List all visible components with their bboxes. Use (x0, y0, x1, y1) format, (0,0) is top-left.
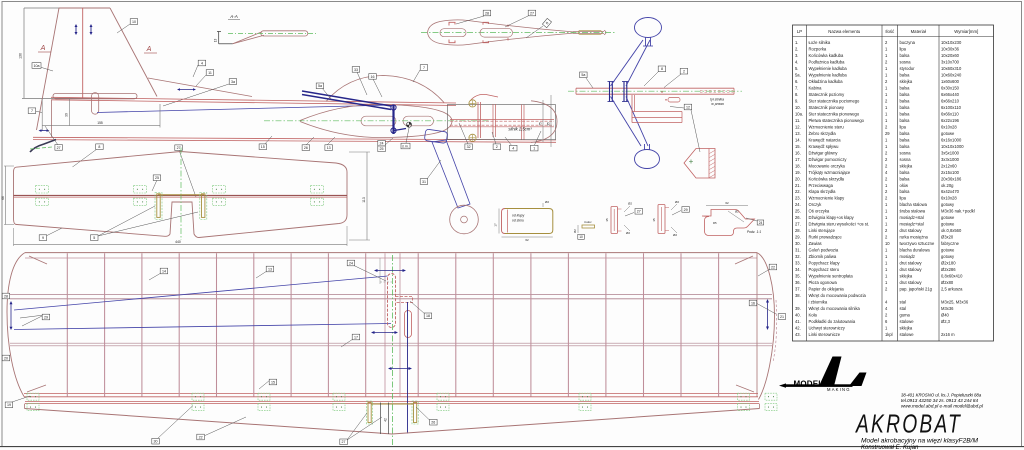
svg-text:5a: 5a (581, 73, 585, 77)
svg-text:20: 20 (4, 356, 8, 360)
svg-text:7.: 7. (795, 85, 798, 90)
svg-text:6x66x440: 6x66x440 (941, 92, 960, 97)
svg-text:Dźwignia steru wysokości +os s: Dźwignia steru wysokości +os st. (809, 222, 870, 227)
svg-text:Żebro skrzydła: Żebro skrzydła (809, 131, 837, 136)
svg-text:tel.0913 43250 34 zs. 0913 43: tel.0913 43250 34 zs. 0913 43 244 84 (901, 398, 979, 403)
svg-text:3.: 3. (795, 53, 798, 58)
svg-text:35.: 35. (795, 274, 801, 279)
svg-text:Ø2: Ø2 (545, 200, 549, 204)
svg-text:A-A: A-A (229, 14, 238, 19)
svg-text:13: 13 (268, 267, 272, 271)
svg-text:17: 17 (494, 223, 498, 227)
svg-text:Linki sterujące: Linki sterujące (809, 228, 836, 233)
svg-text:155: 155 (97, 121, 103, 125)
svg-text:7: 7 (31, 109, 33, 113)
svg-text:29: 29 (885, 131, 890, 136)
svg-text:Trójkąty wzmacniające: Trójkąty wzmacniające (809, 170, 851, 175)
svg-text:balsa: balsa (900, 189, 911, 194)
svg-text:10.: 10. (795, 105, 801, 110)
svg-text:27: 27 (530, 11, 534, 15)
svg-text:10x10x230: 10x10x230 (941, 40, 962, 45)
svg-text:rurka mosiężna: rurka mosiężna (900, 235, 929, 240)
svg-text:od steru: od steru (512, 219, 524, 223)
svg-text:31: 31 (422, 180, 426, 184)
svg-text:sklejka: sklejka (900, 274, 913, 279)
svg-text:37.: 37. (795, 287, 801, 292)
svg-text:bolec: bolec (584, 220, 592, 224)
svg-text:440: 440 (175, 240, 181, 244)
svg-text:blacha stalowa: blacha stalowa (900, 202, 928, 207)
svg-text:15.: 15. (795, 144, 801, 149)
svg-text:6x42x470: 6x42x470 (941, 189, 960, 194)
svg-text:Okładzina kadłuba: Okładzina kadłuba (809, 79, 844, 84)
svg-text:gotowe: gotowe (941, 131, 955, 136)
svg-text:tworzywo sztuczne: tworzywo sztuczne (900, 241, 935, 246)
svg-text:Wzmocnienie steru: Wzmocnienie steru (809, 124, 845, 129)
svg-text:balsa: balsa (900, 85, 911, 90)
svg-text:1kpl: 1kpl (885, 332, 893, 337)
svg-text:3a: 3a (231, 80, 235, 84)
svg-text:buczyna: buczyna (900, 40, 916, 45)
svg-text:AKROBAT: AKROBAT (855, 409, 962, 439)
svg-text:balsa: balsa (900, 53, 911, 58)
svg-text:2.: 2. (795, 46, 798, 51)
svg-text:4.: 4. (795, 59, 798, 64)
svg-text:Rurki prowadzące: Rurki prowadzące (809, 235, 843, 240)
svg-text:25: 25 (155, 176, 159, 180)
svg-text:Łoże silnika: Łoże silnika (809, 40, 831, 45)
svg-text:75: 75 (539, 122, 543, 126)
svg-text:1x60x600: 1x60x600 (941, 79, 960, 84)
svg-text:62: 62 (525, 238, 529, 242)
svg-text:10a.: 10a. (795, 111, 803, 116)
svg-text:drut stalowy: drut stalowy (900, 228, 923, 233)
svg-text:9.: 9. (795, 98, 798, 103)
svg-text:gotowy: gotowy (941, 202, 955, 207)
svg-text:18: 18 (426, 314, 430, 318)
svg-text:balsa: balsa (900, 72, 911, 77)
svg-text:Ø2: Ø2 (673, 233, 677, 237)
svg-text:8: 8 (661, 67, 663, 71)
svg-text:Ø3x20: Ø3x20 (941, 235, 954, 240)
svg-text:sklejka: sklejka (900, 326, 913, 331)
svg-text:29: 29 (44, 315, 48, 319)
svg-text:od klapy: od klapy (512, 214, 525, 218)
svg-text:tył silnika: tył silnika (710, 98, 724, 102)
svg-text:28: 28 (4, 294, 8, 298)
svg-text:Oś orczyka: Oś orczyka (809, 209, 830, 214)
svg-text:28.: 28. (795, 228, 801, 233)
svg-text:10x60x240: 10x60x240 (941, 72, 962, 77)
svg-text:śruba stalowa: śruba stalowa (900, 209, 926, 214)
svg-text:Klapa skrzydła: Klapa skrzydła (809, 189, 837, 194)
svg-text:30.: 30. (795, 241, 801, 246)
svg-text:Ø2x180: Ø2x180 (941, 261, 956, 266)
svg-text:6x10x28: 6x10x28 (941, 124, 957, 129)
svg-text:fabryczne: fabryczne (941, 241, 960, 246)
svg-text:Konstruował E. Kujan: Konstruował E. Kujan (861, 445, 919, 450)
svg-text:3x10x700: 3x10x700 (941, 59, 960, 64)
svg-text:balsa: balsa (900, 98, 911, 103)
svg-text:Model akrobacyjny na więzi kla: Model akrobacyjny na więzi klasyF2B/M (861, 438, 979, 445)
svg-text:i zbiornika: i zbiornika (809, 300, 828, 305)
svg-text:21.: 21. (795, 183, 801, 188)
svg-text:drut stalowy: drut stalowy (900, 280, 923, 285)
svg-text:13: 13 (327, 146, 331, 150)
svg-text:Podłużnica kadłuba: Podłużnica kadłuba (809, 59, 846, 64)
svg-text:27: 27 (637, 210, 641, 214)
svg-text:guma: guma (900, 313, 911, 318)
svg-text:Uchwyt sterowniczy: Uchwyt sterowniczy (809, 326, 846, 331)
svg-text:ok.0,8x560: ok.0,8x560 (941, 228, 962, 233)
svg-text:24.: 24. (795, 202, 801, 207)
svg-text:42.: 42. (795, 326, 801, 331)
svg-text:22.: 22. (795, 189, 801, 194)
svg-text:17.: 17. (795, 157, 801, 162)
svg-text:33.: 33. (795, 261, 801, 266)
svg-text:24: 24 (349, 261, 353, 265)
svg-text:ok.20g: ok.20g (941, 183, 954, 188)
svg-text:M3x36: M3x36 (941, 306, 954, 311)
svg-text:7: 7 (423, 66, 425, 70)
svg-text:Dźwignia klapy+os klapy: Dźwignia klapy+os klapy (809, 215, 855, 220)
svg-text:Koła: Koła (809, 313, 818, 318)
svg-text:sklejka: sklejka (900, 163, 913, 168)
svg-text:6x66x110: 6x66x110 (941, 111, 959, 116)
svg-text:5a.: 5a. (795, 72, 801, 77)
svg-text:4: 4 (201, 61, 203, 65)
svg-text:balsa: balsa (900, 170, 911, 175)
svg-text:29.: 29. (795, 235, 801, 240)
svg-text:34.: 34. (795, 267, 801, 272)
svg-text:Ø2: Ø2 (735, 210, 739, 214)
svg-text:Popychacz steru: Popychacz steru (809, 267, 840, 272)
svg-text:26: 26 (304, 146, 308, 150)
svg-text:2x16 m: 2x16 m (941, 332, 955, 337)
svg-text:Końcówka kadłuba: Końcówka kadłuba (809, 53, 844, 58)
svg-text:113: 113 (362, 197, 366, 203)
svg-text:8.: 8. (795, 92, 798, 97)
svg-text:sosna: sosna (900, 59, 912, 64)
svg-text:M3x25, M3x36: M3x25, M3x36 (941, 300, 969, 305)
svg-text:10x20x60: 10x20x60 (941, 53, 960, 58)
svg-text:drut stalowy: drut stalowy (900, 267, 923, 272)
svg-text:gotowe: gotowe (941, 215, 955, 220)
svg-text:21: 21 (780, 315, 784, 319)
svg-text:1: 1 (533, 146, 535, 150)
svg-text:30: 30 (154, 440, 158, 444)
svg-text:3x3x1000: 3x3x1000 (941, 157, 960, 162)
svg-text:Goleń podwozia: Goleń podwozia (809, 248, 839, 253)
svg-text:2x12x60: 2x12x60 (941, 163, 957, 168)
svg-text:Statecznik poziomy: Statecznik poziomy (809, 92, 846, 97)
svg-text:Ø2x80: Ø2x80 (941, 280, 954, 285)
svg-text:16: 16 (751, 301, 755, 305)
svg-text:41.: 41. (795, 319, 801, 324)
svg-text:26: 26 (431, 421, 435, 425)
svg-text:gotowe: gotowe (941, 248, 955, 253)
svg-text:ołów: ołów (900, 183, 909, 188)
svg-text:2,5 arkusza: 2,5 arkusza (941, 287, 963, 292)
svg-text:Ø2: Ø2 (675, 200, 679, 204)
svg-text:25: 25 (380, 147, 384, 151)
svg-text:6x30x150: 6x30x150 (941, 85, 960, 90)
svg-text:w prawo: w prawo (711, 102, 724, 106)
svg-text:28: 28 (485, 11, 489, 15)
svg-text:gotowy: gotowy (941, 254, 955, 259)
svg-text:balsa: balsa (900, 144, 911, 149)
svg-text:Nazwa elementu: Nazwa elementu (828, 29, 861, 34)
svg-text:32.: 32. (795, 254, 801, 259)
svg-text:Statecznik pionowy: Statecznik pionowy (809, 105, 845, 110)
svg-text:stal: stal (900, 306, 907, 311)
svg-text:32: 32 (467, 145, 471, 149)
svg-text:Ø2,3: Ø2,3 (941, 319, 951, 324)
svg-text:styrodur: styrodur (900, 66, 916, 71)
svg-text:LP: LP (797, 29, 802, 34)
svg-text:16.: 16. (795, 150, 801, 155)
svg-text:lipa: lipa (900, 124, 907, 129)
svg-text:balsa: balsa (900, 137, 911, 142)
svg-text:5: 5 (93, 236, 95, 240)
svg-text:balsa: balsa (900, 92, 911, 97)
svg-text:Dźwigar pomocniczy: Dźwigar pomocniczy (809, 157, 848, 162)
svg-text:6x10x28: 6x10x28 (941, 196, 957, 201)
svg-text:6x16x1000: 6x16x1000 (941, 137, 962, 142)
svg-text:10: 10 (579, 235, 583, 239)
svg-text:Mocowanie orczyka: Mocowanie orczyka (809, 163, 846, 168)
svg-text:8: 8 (98, 145, 100, 149)
svg-text:Ø2: Ø2 (626, 231, 630, 235)
svg-text:sklejka: sklejka (900, 79, 913, 84)
svg-text:ś.m.: ś.m. (402, 144, 409, 148)
svg-text:Rozporka: Rozporka (809, 46, 827, 51)
svg-text:38-401 KROSNO ul. ks.J. Popieł: 38-401 KROSNO ul. ks.J. Popiełuszki 88a (901, 393, 982, 398)
svg-text:14.: 14. (795, 137, 801, 142)
svg-text:33: 33 (354, 68, 358, 72)
svg-text:66: 66 (1, 196, 5, 200)
svg-text:Ø2: Ø2 (628, 202, 632, 206)
svg-text:29: 29 (684, 208, 688, 212)
svg-text:Wkręt do mocowania podwozia: Wkręt do mocowania podwozia (809, 293, 867, 298)
svg-text:Płoza ogonowa: Płoza ogonowa (809, 280, 838, 285)
svg-text:Orczyk: Orczyk (809, 202, 823, 207)
svg-text:36.: 36. (795, 280, 801, 285)
svg-text:9: 9 (42, 236, 44, 240)
svg-text:Podkładki do zalutowania: Podkładki do zalutowania (809, 319, 856, 324)
svg-text:42: 42 (383, 418, 387, 422)
svg-text:18.: 18. (795, 163, 801, 168)
svg-text:Linki sterownicze: Linki sterownicze (809, 332, 841, 337)
svg-text:balsa: balsa (900, 131, 911, 136)
svg-text:Wypełnienie sentropłata: Wypełnienie sentropłata (809, 274, 854, 279)
svg-text:Wymiar[mm]: Wymiar[mm] (954, 29, 978, 34)
svg-text:11: 11 (208, 71, 212, 75)
svg-text:24: 24 (759, 221, 763, 225)
svg-text:mosiądz: mosiądz (900, 254, 915, 259)
svg-text:Popychacz klapy: Popychacz klapy (809, 261, 841, 266)
svg-text:22: 22 (771, 265, 775, 269)
svg-text:16: 16 (371, 75, 375, 79)
svg-text:35: 35 (605, 218, 609, 222)
svg-text:Krawędź natarcia: Krawędź natarcia (809, 137, 842, 142)
svg-text:10: 10 (132, 20, 136, 24)
svg-text:6x100x110: 6x100x110 (941, 105, 962, 110)
svg-text:lipa: lipa (900, 196, 907, 201)
svg-text:6x66x210: 6x66x210 (941, 98, 960, 103)
svg-text:Ø40: Ø40 (941, 313, 950, 318)
svg-text:Materiał: Materiał (911, 29, 926, 34)
svg-text:0,8x60x410: 0,8x60x410 (941, 274, 963, 279)
svg-text:35: 35 (547, 122, 551, 126)
svg-text:39.: 39. (795, 306, 801, 311)
svg-text:Ø2x286: Ø2x286 (941, 267, 956, 272)
svg-text:25.: 25. (795, 209, 801, 214)
svg-text:Ø2: Ø2 (573, 229, 577, 233)
svg-text:15: 15 (261, 145, 265, 149)
svg-text:mosiądz+stal: mosiądz+stal (900, 215, 924, 220)
svg-text:10x10x1000: 10x10x1000 (941, 144, 964, 149)
svg-text:MODEL: MODEL (794, 379, 824, 388)
svg-text:Wkręt do mocowania silnika: Wkręt do mocowania silnika (809, 306, 861, 311)
svg-text:balsa: balsa (900, 176, 911, 181)
svg-text:17: 17 (354, 335, 358, 339)
svg-text:6x22x196: 6x22x196 (941, 118, 960, 123)
svg-text:3x5x1000: 3x5x1000 (941, 150, 960, 155)
svg-text:10a: 10a (34, 64, 40, 68)
svg-text:14: 14 (162, 269, 166, 273)
svg-text:10: 10 (885, 241, 890, 246)
svg-text:sosna: sosna (900, 157, 912, 162)
svg-text:5a: 5a (318, 84, 322, 88)
svg-text:Podz. 1:1: Podz. 1:1 (747, 230, 761, 234)
svg-text:gotowe: gotowe (941, 222, 955, 227)
svg-text:Zawias: Zawias (809, 241, 822, 246)
svg-text:silnik 2,5cm³: silnik 2,5cm³ (508, 127, 532, 132)
svg-text:22: 22 (199, 435, 203, 439)
svg-text:13.: 13. (795, 131, 801, 136)
svg-text:31.: 31. (795, 248, 801, 253)
svg-text:stalowe: stalowe (900, 319, 915, 324)
svg-text:35: 35 (652, 218, 656, 222)
svg-text:stal: stal (900, 300, 907, 305)
svg-text:M3x36 nak.+podkl: M3x36 nak.+podkl (941, 209, 975, 214)
svg-text:Wypełnienie kadłuba: Wypełnienie kadłuba (809, 72, 848, 77)
svg-text:A: A (40, 43, 46, 52)
svg-text:62: 62 (725, 201, 729, 205)
svg-text:27: 27 (342, 440, 346, 444)
svg-text:Kabina: Kabina (809, 85, 823, 90)
svg-text:pap. japoński 21g: pap. japoński 21g (900, 287, 933, 292)
svg-text:26.: 26. (795, 215, 801, 220)
svg-text:10x30x36: 10x30x36 (941, 46, 960, 51)
svg-text:Wzmocnienie klapy: Wzmocnienie klapy (809, 196, 846, 201)
svg-text:15: 15 (271, 380, 275, 384)
svg-text:Przeciwwaga: Przeciwwaga (809, 183, 834, 188)
svg-text:Ster statecznika poziomego: Ster statecznika poziomego (809, 98, 861, 103)
svg-text:Krawędź spływu: Krawędź spływu (809, 144, 840, 149)
svg-text:drut stalowy: drut stalowy (900, 261, 923, 266)
svg-text:balsa: balsa (900, 111, 911, 116)
svg-text:43.: 43. (795, 332, 801, 337)
svg-text:sosna: sosna (900, 150, 912, 155)
svg-text:Dźwigar główny: Dźwigar główny (809, 150, 839, 155)
svg-text:20.: 20. (795, 176, 801, 181)
svg-text:27: 27 (57, 146, 61, 150)
svg-text:mosiądz+stal: mosiądz+stal (900, 222, 924, 227)
svg-text:2: 2 (496, 145, 498, 149)
svg-text:23.: 23. (795, 196, 801, 201)
svg-text:Końcówka skrzydła: Końcówka skrzydła (809, 176, 845, 181)
svg-text:Ster statecznika pionowego: Ster statecznika pionowego (809, 111, 860, 116)
svg-text:2x15x100: 2x15x100 (941, 170, 960, 175)
svg-text:27: 27 (177, 146, 181, 150)
svg-text:40.: 40. (795, 313, 801, 318)
svg-text:2: 2 (683, 70, 685, 74)
svg-text:MAKING: MAKING (827, 387, 851, 392)
svg-text:12: 12 (686, 105, 690, 109)
svg-text:stalowe: stalowe (900, 332, 915, 337)
svg-text:balsa: balsa (900, 118, 911, 123)
svg-text:R5: R5 (713, 221, 717, 225)
svg-text:Płetwa statecznika pionowego: Płetwa statecznika pionowego (809, 118, 865, 123)
svg-text:38.: 38. (795, 293, 801, 298)
svg-text:5.: 5. (795, 66, 798, 71)
svg-text:19.: 19. (795, 170, 801, 175)
svg-text:27.: 27. (795, 222, 801, 227)
svg-text:130: 130 (19, 53, 23, 59)
svg-text:1.: 1. (795, 40, 798, 45)
svg-text:10x60x310: 10x60x310 (941, 66, 962, 71)
svg-text:12.: 12. (795, 124, 801, 129)
svg-text:Zbiornik paliwa: Zbiornik paliwa (809, 254, 837, 259)
svg-text:13: 13 (214, 39, 218, 43)
svg-text:6.: 6. (795, 79, 798, 84)
svg-text:30: 30 (64, 113, 68, 117)
svg-text:Papier do oklejania: Papier do oklejania (809, 287, 845, 292)
svg-text:24: 24 (380, 142, 384, 146)
svg-text:4: 4 (512, 146, 514, 150)
svg-text:Wypełnienie kadłuba: Wypełnienie kadłuba (809, 66, 848, 71)
svg-text:11.: 11. (795, 118, 800, 123)
svg-text:lipa: lipa (900, 46, 907, 51)
svg-text:Ilość: Ilość (885, 29, 895, 34)
svg-text:balsa: balsa (900, 105, 911, 110)
svg-text:19: 19 (7, 403, 11, 407)
svg-text:A: A (146, 44, 152, 53)
svg-text:20x36x186: 20x36x186 (941, 176, 962, 181)
svg-text:blacha duralowa: blacha duralowa (900, 248, 931, 253)
